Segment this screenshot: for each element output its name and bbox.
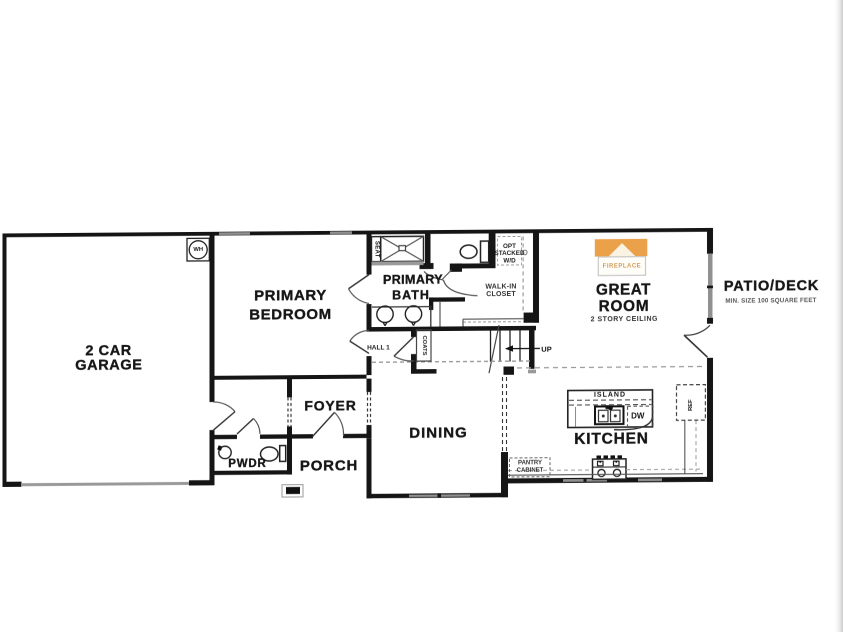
svg-text:ISLAND: ISLAND: [594, 391, 626, 398]
svg-text:MIN. SIZE 100 SQUARE FEET: MIN. SIZE 100 SQUARE FEET: [725, 297, 816, 305]
svg-text:OPT: OPT: [503, 243, 516, 250]
svg-text:COATS: COATS: [421, 336, 427, 356]
svg-text:FOYER: FOYER: [304, 397, 356, 413]
svg-text:GREAT: GREAT: [596, 281, 651, 298]
svg-text:PORCH: PORCH: [300, 457, 358, 474]
svg-text:PANTRY: PANTRY: [518, 460, 542, 466]
svg-text:CLOSET: CLOSET: [486, 291, 516, 298]
svg-text:2 STORY CEILING: 2 STORY CEILING: [591, 316, 658, 324]
svg-text:FIREPLACE: FIREPLACE: [603, 263, 642, 269]
svg-text:WALK-IN: WALK-IN: [485, 283, 516, 290]
svg-text:PATIO/DECK: PATIO/DECK: [724, 278, 819, 295]
svg-text:STACKED: STACKED: [495, 250, 525, 257]
svg-text:REF: REF: [688, 399, 694, 411]
svg-text:SEAT: SEAT: [373, 241, 379, 258]
svg-text:PRIMARY: PRIMARY: [383, 273, 443, 287]
svg-text:GARAGE: GARAGE: [75, 357, 142, 374]
svg-text:DW: DW: [631, 411, 645, 420]
svg-text:WH: WH: [193, 247, 203, 253]
svg-text:ROOM: ROOM: [599, 298, 650, 315]
svg-text:KITCHEN: KITCHEN: [574, 431, 648, 449]
svg-text:PRIMARY: PRIMARY: [254, 287, 327, 305]
svg-text:HALL 1: HALL 1: [367, 344, 390, 351]
svg-text:PWDR: PWDR: [228, 458, 266, 470]
svg-text:DINING: DINING: [409, 425, 468, 442]
svg-text:BATH: BATH: [392, 288, 430, 302]
svg-text:BEDROOM: BEDROOM: [249, 306, 332, 324]
svg-text:W/D: W/D: [503, 258, 516, 265]
svg-text:CABINET: CABINET: [517, 468, 544, 474]
svg-text:UP: UP: [541, 345, 551, 354]
